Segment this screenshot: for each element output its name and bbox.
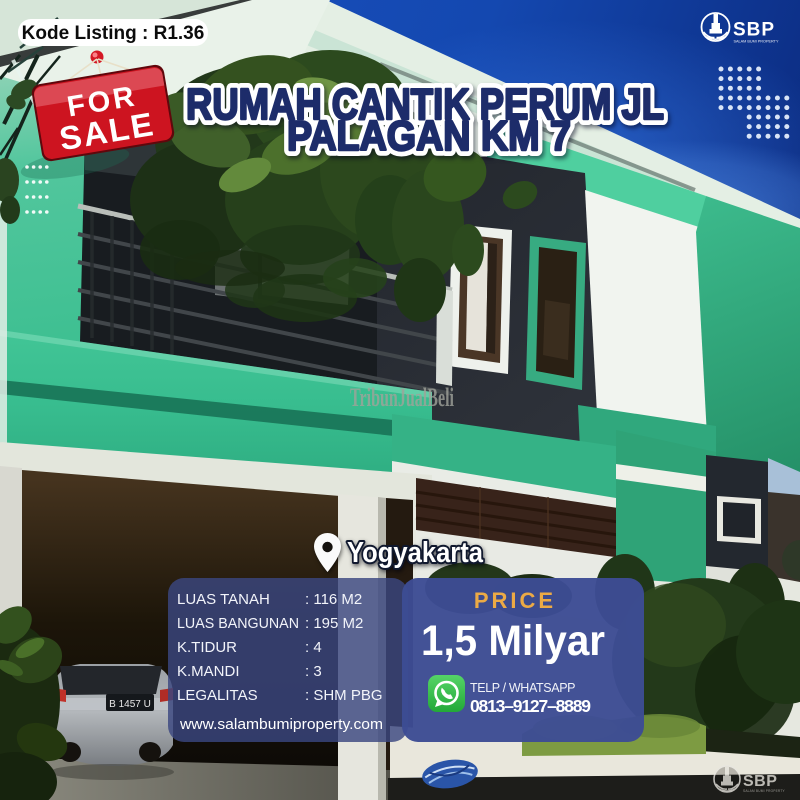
svg-text:TELP / WHATSAPP: TELP / WHATSAPP [470,681,576,695]
svg-text:: 3: : 3 [305,663,322,680]
svg-text:: 4: : 4 [305,639,322,656]
svg-text:TribunJualBeli: TribunJualBeli [350,383,454,412]
svg-text:Kode Listing : R1.36: Kode Listing : R1.36 [22,23,205,44]
svg-text:: 195 M2: : 195 M2 [305,615,363,632]
svg-text:LEGALITAS: LEGALITAS [177,687,258,704]
svg-text:PALAGAN KM 7: PALAGAN KM 7 [287,112,571,159]
svg-text:SALAM BUMI PROPERTY: SALAM BUMI PROPERTY [734,40,779,44]
svg-text:0813–9127–8889: 0813–9127–8889 [470,696,591,716]
svg-text:K.MANDI: K.MANDI [177,663,240,680]
svg-text:K.TIDUR: K.TIDUR [177,639,237,656]
svg-text:Yogyakarta: Yogyakarta [347,537,484,569]
svg-text:PRICE: PRICE [474,588,556,613]
svg-text:1,5 Milyar: 1,5 Milyar [421,617,605,665]
svg-text:LUAS BANGUNAN: LUAS BANGUNAN [177,615,299,632]
svg-text:: SHM PBG: : SHM PBG [305,687,383,704]
svg-text:www.salambumiproperty.com: www.salambumiproperty.com [179,716,383,733]
svg-text:B 1457 U: B 1457 U [109,699,151,710]
svg-text:SBP: SBP [743,773,777,790]
svg-text:: 116 M2: : 116 M2 [305,591,362,608]
svg-text:LUAS TANAH: LUAS TANAH [177,591,270,608]
svg-text:SALAM BUMI PROPERTY: SALAM BUMI PROPERTY [743,789,785,793]
svg-text:SBP: SBP [733,20,775,41]
